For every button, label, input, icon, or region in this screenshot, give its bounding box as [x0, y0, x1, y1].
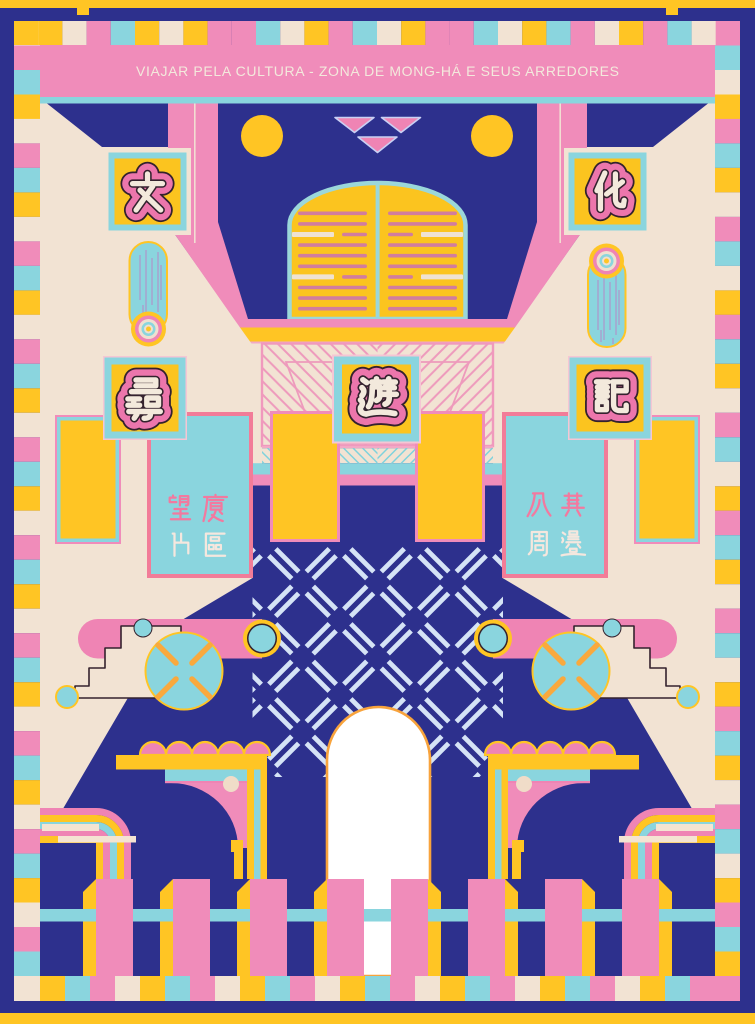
svg-text:VIAJAR PELA CULTURA - ZONA DE: VIAJAR PELA CULTURA - ZONA DE MONG-HÁ E … [136, 63, 619, 79]
